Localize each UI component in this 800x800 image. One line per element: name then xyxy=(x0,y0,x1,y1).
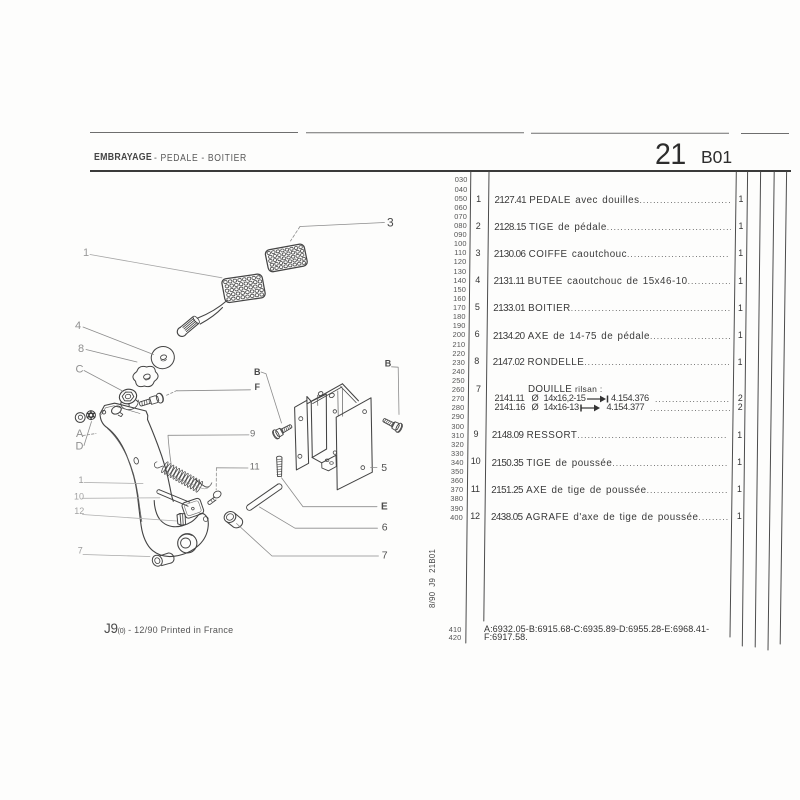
svg-text:6: 6 xyxy=(382,522,388,534)
svg-text:D: D xyxy=(76,441,84,453)
svg-text:1: 1 xyxy=(79,475,84,485)
svg-text:11: 11 xyxy=(250,461,260,472)
svg-text:10: 10 xyxy=(74,491,84,501)
svg-text:5: 5 xyxy=(381,462,387,474)
svg-text:7: 7 xyxy=(382,549,388,561)
svg-text:4: 4 xyxy=(75,320,81,332)
svg-text:E: E xyxy=(381,501,388,512)
svg-text:3: 3 xyxy=(387,216,394,230)
svg-text:B: B xyxy=(385,359,392,369)
svg-text:F: F xyxy=(255,382,261,392)
svg-text:8: 8 xyxy=(78,343,84,355)
svg-text:C: C xyxy=(76,364,84,376)
svg-text:9: 9 xyxy=(250,429,255,440)
svg-text:7: 7 xyxy=(78,545,83,555)
svg-text:B: B xyxy=(254,367,261,377)
svg-text:A: A xyxy=(76,428,84,440)
svg-text:1: 1 xyxy=(83,247,89,259)
